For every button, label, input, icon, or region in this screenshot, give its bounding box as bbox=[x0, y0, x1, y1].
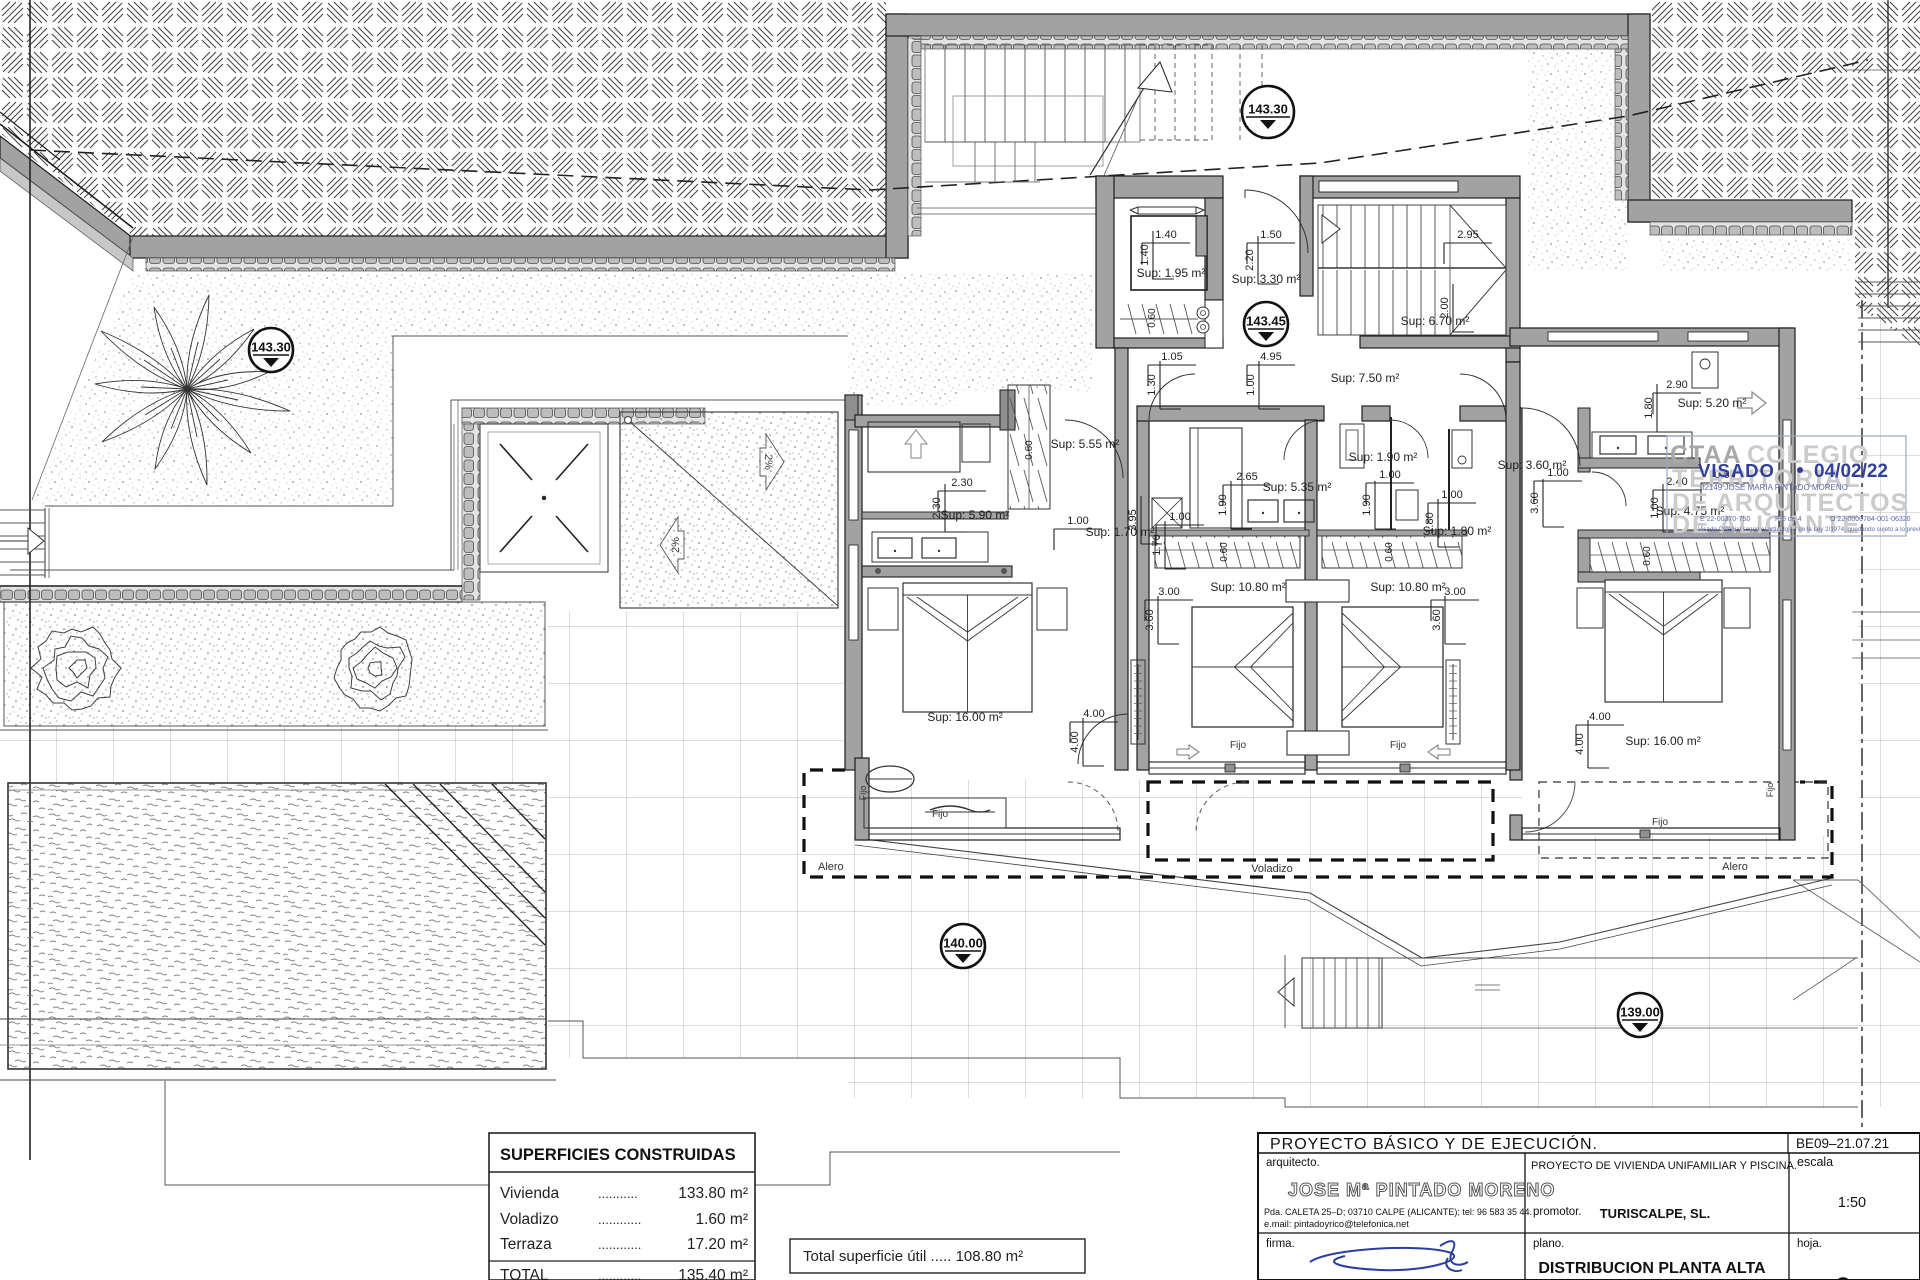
svg-text:3.95: 3.95 bbox=[1127, 509, 1139, 530]
svg-text:Fijo: Fijo bbox=[1652, 817, 1669, 828]
svg-text:Sup: 16.00 m²: Sup: 16.00 m² bbox=[927, 710, 1002, 724]
svg-text:3.60: 3.60 bbox=[1144, 609, 1156, 630]
svg-text:3.00: 3.00 bbox=[1158, 586, 1179, 598]
svg-text:2.65: 2.65 bbox=[1236, 471, 1257, 483]
svg-text:Pda. CALETA 25–D; 03710 CALPE: Pda. CALETA 25–D; 03710 CALPE (ALICANTE)… bbox=[1264, 1207, 1532, 1217]
svg-text:Terraza: Terraza bbox=[500, 1236, 552, 1253]
svg-text:Voladizo: Voladizo bbox=[500, 1211, 559, 1228]
svg-text:1.90: 1.90 bbox=[1361, 494, 1373, 515]
svg-text:Sup: 10.80 m²: Sup: 10.80 m² bbox=[1210, 580, 1285, 594]
svg-text:PROYECTO DE VIVIENDA UNIFAM: PROYECTO DE VIVIENDA UNIFAMILIAR Y PISCI… bbox=[1531, 1160, 1797, 1172]
svg-text:4.00: 4.00 bbox=[1589, 711, 1610, 723]
svg-text:2.00: 2.00 bbox=[1439, 297, 1451, 318]
svg-text:............: ............ bbox=[598, 1237, 641, 1252]
svg-text:4.00: 4.00 bbox=[1574, 733, 1586, 754]
svg-text:4.00: 4.00 bbox=[1083, 708, 1104, 720]
svg-text:Fijo: Fijo bbox=[932, 809, 949, 820]
svg-text:Sup: 10.80 m²: Sup: 10.80 m² bbox=[1370, 580, 1445, 594]
svg-text:Sup: 1.95 m²: Sup: 1.95 m² bbox=[1137, 266, 1206, 280]
svg-text:Sup: 5.90 m²: Sup: 5.90 m² bbox=[941, 508, 1010, 522]
svg-text:3.60: 3.60 bbox=[1529, 492, 1541, 513]
svg-text:BE09–21.07.21: BE09–21.07.21 bbox=[1796, 1136, 1889, 1151]
svg-text:3.60: 3.60 bbox=[1431, 609, 1443, 630]
svg-text:Sup: 5.55 m²: Sup: 5.55 m² bbox=[1051, 437, 1120, 451]
svg-text:2.30: 2.30 bbox=[951, 477, 972, 489]
svg-text:...........: ........... bbox=[598, 1186, 638, 1201]
svg-text:PROYECTO BÁSICO Y DE EJECU: PROYECTO BÁSICO Y DE EJECUCIÓN. bbox=[1270, 1134, 1598, 1153]
svg-text:143.30: 143.30 bbox=[1248, 102, 1288, 117]
svg-text:0.60: 0.60 bbox=[1147, 308, 1158, 328]
svg-text:DISTRIBUCION PLANTA ALTA: DISTRIBUCION PLANTA ALTA bbox=[1538, 1260, 1766, 1277]
svg-text:Visado Colegial según el artíc: Visado Colegial según el artículo 13 de … bbox=[1698, 526, 1920, 533]
svg-text:VISADO: VISADO bbox=[1698, 460, 1775, 481]
svg-text:TURISCALPE, SL.: TURISCALPE, SL. bbox=[1600, 1206, 1711, 1221]
svg-text:2.20: 2.20 bbox=[1244, 249, 1256, 270]
svg-text:2.90: 2.90 bbox=[1666, 379, 1687, 391]
svg-text:plano.: plano. bbox=[1533, 1238, 1564, 1250]
svg-text:3.00: 3.00 bbox=[1444, 586, 1465, 598]
svg-text:Sup: 5.35 m²: Sup: 5.35 m² bbox=[1263, 480, 1332, 494]
svg-text:2%: 2% bbox=[670, 537, 682, 553]
svg-text:Fijo: Fijo bbox=[858, 786, 868, 801]
svg-text:17.20 m²: 17.20 m² bbox=[687, 1236, 748, 1253]
svg-text:1.80: 1.80 bbox=[1643, 397, 1655, 418]
svg-text:Sup: 16.00 m²: Sup: 16.00 m² bbox=[1625, 734, 1700, 748]
svg-text:1.00: 1.00 bbox=[1379, 469, 1400, 481]
svg-text:133.80 m²: 133.80 m² bbox=[678, 1185, 748, 1202]
svg-text:firma.: firma. bbox=[1266, 1238, 1295, 1250]
svg-text:0.60: 0.60 bbox=[1219, 542, 1230, 562]
svg-text:Sup: 1.70 m²: Sup: 1.70 m² bbox=[1086, 525, 1155, 539]
svg-text:P-6 de 4: P-6 de 4 bbox=[1775, 516, 1802, 523]
svg-text:1.40: 1.40 bbox=[1155, 229, 1176, 241]
svg-text:1.05: 1.05 bbox=[1161, 351, 1182, 363]
svg-text:Alero: Alero bbox=[818, 861, 844, 873]
svg-text:............: ............ bbox=[598, 1212, 641, 1227]
svg-text:143.30: 143.30 bbox=[251, 340, 291, 355]
svg-text:2%: 2% bbox=[762, 454, 774, 470]
svg-text:Sup: 6.70 m²: Sup: 6.70 m² bbox=[1401, 314, 1470, 328]
svg-text:1.30: 1.30 bbox=[1146, 374, 1158, 395]
svg-text:1.80: 1.80 bbox=[1424, 512, 1436, 533]
svg-text:1.00: 1.00 bbox=[1649, 497, 1661, 518]
svg-text:0.60: 0.60 bbox=[1384, 542, 1395, 562]
svg-text:arquitecto.: arquitecto. bbox=[1266, 1157, 1320, 1169]
svg-text:E 22-00370-750: E 22-00370-750 bbox=[1700, 516, 1750, 523]
svg-text:4.00: 4.00 bbox=[1069, 731, 1081, 752]
svg-text:Vivienda: Vivienda bbox=[500, 1185, 560, 1202]
svg-text:1.90: 1.90 bbox=[1217, 494, 1229, 515]
svg-text:1.40: 1.40 bbox=[1139, 244, 1151, 265]
svg-text:Fijo: Fijo bbox=[1390, 740, 1407, 751]
svg-text:2.30: 2.30 bbox=[931, 497, 943, 518]
svg-text:1.60 m²: 1.60 m² bbox=[695, 1211, 748, 1228]
svg-text:140.00: 140.00 bbox=[943, 936, 983, 951]
svg-text:SUPERFICIES CONSTRUIDAS: SUPERFICIES CONSTRUIDAS bbox=[500, 1146, 736, 1164]
svg-text:1.70: 1.70 bbox=[1151, 534, 1163, 555]
svg-text:02149 JOSE MARIA PINTADO MOREN: 02149 JOSE MARIA PINTADO MORENO bbox=[1700, 483, 1848, 492]
svg-text:Total superficie útil ..... 10: Total superficie útil ..... 108.80 m² bbox=[803, 1248, 1023, 1265]
svg-text:1.00: 1.00 bbox=[1441, 489, 1462, 501]
svg-text:promotor.: promotor. bbox=[1533, 1206, 1582, 1218]
svg-text:Alero: Alero bbox=[1722, 861, 1748, 873]
svg-text:escala: escala bbox=[1797, 1155, 1833, 1169]
svg-text:Fijo: Fijo bbox=[1765, 783, 1775, 798]
svg-text:Fijo: Fijo bbox=[1230, 740, 1247, 751]
svg-text:2.95: 2.95 bbox=[1457, 229, 1478, 241]
svg-text:0.60: 0.60 bbox=[1024, 440, 1035, 460]
svg-text:Voladizo: Voladizo bbox=[1251, 863, 1293, 875]
svg-text:1.00: 1.00 bbox=[1547, 467, 1568, 479]
svg-text:135.40 m²: 135.40 m² bbox=[678, 1267, 748, 1280]
svg-text:Sup: 1.90 m²: Sup: 1.90 m² bbox=[1349, 450, 1418, 464]
svg-text:Sup: 7.50 m²: Sup: 7.50 m² bbox=[1331, 371, 1400, 385]
svg-text:1:50: 1:50 bbox=[1838, 1195, 1866, 1211]
svg-text:4.95: 4.95 bbox=[1260, 351, 1281, 363]
svg-text:hoja.: hoja. bbox=[1797, 1238, 1822, 1250]
svg-text:............: ............ bbox=[598, 1268, 641, 1280]
svg-text:04/02/22: 04/02/22 bbox=[1814, 461, 1888, 482]
svg-text:2: 2 bbox=[1835, 1272, 1852, 1280]
svg-text:0.60: 0.60 bbox=[1642, 546, 1653, 566]
svg-text:1.00: 1.00 bbox=[1169, 511, 1190, 523]
svg-text:1.50: 1.50 bbox=[1260, 229, 1281, 241]
svg-text:Sup: 5.20 m²: Sup: 5.20 m² bbox=[1678, 396, 1747, 410]
svg-text:1.00: 1.00 bbox=[1245, 374, 1257, 395]
svg-text:e.mail: pintadoyrico@telefoni: e.mail: pintadoyrico@telefonica.net bbox=[1264, 1219, 1409, 1229]
svg-text:143.45: 143.45 bbox=[1246, 314, 1286, 329]
svg-text:JOSE Mª PINTADO MORENO: JOSE Mª PINTADO MORENO bbox=[1288, 1180, 1555, 1200]
svg-text:1.00: 1.00 bbox=[1067, 515, 1088, 527]
svg-text:O 22-0000784-001-06320: O 22-0000784-001-06320 bbox=[1830, 516, 1911, 523]
svg-text:TOTAL: TOTAL bbox=[500, 1267, 549, 1280]
svg-text:139.00: 139.00 bbox=[1620, 1005, 1660, 1020]
